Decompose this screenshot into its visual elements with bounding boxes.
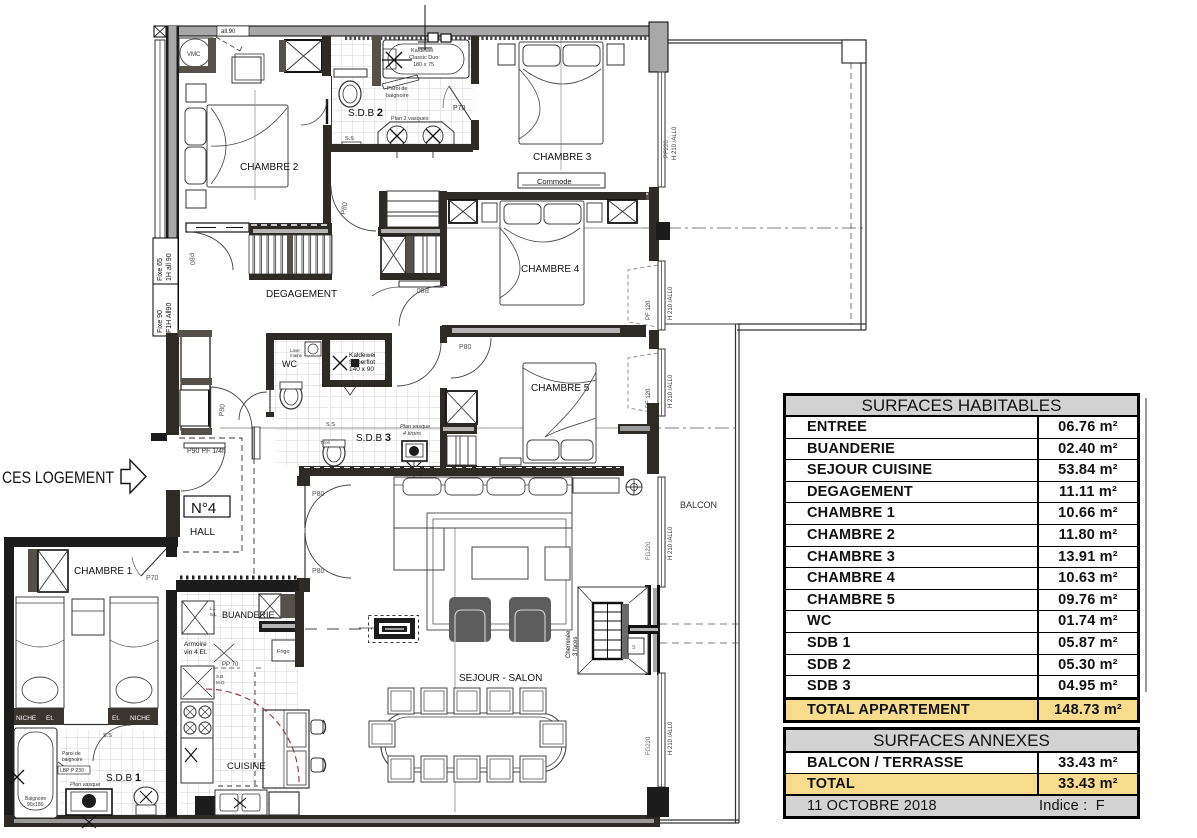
svg-text:Frigo: Frigo bbox=[277, 649, 290, 655]
svg-text:P80: P80 bbox=[459, 344, 472, 351]
svg-text:NICHE: NICHE bbox=[16, 715, 37, 722]
svg-text:H 210 /ALL0: H 210 /ALL0 bbox=[668, 526, 674, 560]
svg-text:4 tiroirs: 4 tiroirs bbox=[403, 431, 421, 437]
svg-text:CHAMBRE 4: CHAMBRE 4 bbox=[521, 264, 580, 275]
svg-text:PF220: PF220 bbox=[664, 140, 670, 158]
svg-text:S.S: S.S bbox=[326, 422, 335, 428]
svg-text:1H all 90: 1H all 90 bbox=[166, 253, 173, 281]
svg-text:M.O: M.O bbox=[216, 680, 225, 685]
svg-text:90x180: 90x180 bbox=[27, 802, 44, 808]
svg-text:S.D.B 1: S.D.B 1 bbox=[106, 772, 141, 784]
svg-text:S.S: S.S bbox=[345, 136, 354, 142]
svg-text:P80: P80 bbox=[219, 404, 227, 417]
svg-text:Cheminée: Cheminée bbox=[566, 630, 572, 658]
svg-text:140 x 90: 140 x 90 bbox=[349, 366, 374, 373]
svg-text:Classic Duo: Classic Duo bbox=[409, 55, 438, 61]
svg-text:WC: WC bbox=[282, 359, 297, 369]
svg-text:CHAMBRE 5: CHAMBRE 5 bbox=[531, 383, 590, 394]
svg-text:DEGAGEMENT: DEGAGEMENT bbox=[266, 289, 337, 300]
svg-text:Fixe 65: Fixe 65 bbox=[157, 258, 164, 281]
svg-text:vin 4 Et.: vin 4 Et. bbox=[184, 649, 208, 656]
svg-text:3 faces: 3 faces bbox=[573, 637, 579, 656]
svg-text:H 210 /ALL0: H 210 /ALL0 bbox=[668, 374, 674, 408]
svg-text:H 210 /ALL0: H 210 /ALL0 bbox=[668, 286, 674, 320]
svg-text:CHAMBRE 2: CHAMBRE 2 bbox=[240, 162, 299, 173]
svg-text:L.L: L.L bbox=[210, 606, 217, 611]
svg-text:N°4: N°4 bbox=[191, 500, 216, 517]
svg-text:Tiroir: Tiroir bbox=[320, 440, 331, 445]
svg-text:FG220: FG220 bbox=[646, 736, 652, 755]
svg-text:Plan vasque: Plan vasque bbox=[400, 424, 430, 430]
svg-text:Armoire: Armoire bbox=[184, 641, 207, 648]
svg-text:P90 PF 1/4h: P90 PF 1/4h bbox=[187, 448, 226, 455]
svg-text:CUISINE: CUISINE bbox=[227, 761, 266, 772]
svg-text:NICHE: NICHE bbox=[130, 715, 151, 722]
svg-text:Kaldewei: Kaldewei bbox=[411, 48, 433, 54]
svg-text:LBP P 230: LBP P 230 bbox=[60, 768, 84, 774]
svg-text:PF 120: PF 120 bbox=[646, 300, 652, 320]
svg-text:CHAMBRE 3: CHAMBRE 3 bbox=[533, 152, 592, 163]
svg-text:Plan 2 vasques: Plan 2 vasques bbox=[391, 116, 429, 122]
svg-text:H 210 /ALL0: H 210 /ALL0 bbox=[668, 721, 674, 755]
svg-text:Paroi de: Paroi de bbox=[387, 86, 408, 92]
svg-text:S.S: S.S bbox=[103, 733, 112, 739]
svg-text:mains: mains bbox=[290, 353, 303, 358]
svg-text:baignoire: baignoire bbox=[386, 93, 409, 99]
svg-text:P80: P80 bbox=[312, 568, 325, 575]
svg-text:S.L: S.L bbox=[210, 612, 217, 617]
svg-text:Et.: Et. bbox=[112, 715, 120, 722]
svg-text:CES LOGEMENT: CES LOGEMENT bbox=[2, 468, 114, 487]
svg-text:S.B: S.B bbox=[216, 674, 223, 679]
svg-text:BUANDERIE: BUANDERIE bbox=[222, 610, 275, 620]
svg-text:VMC: VMC bbox=[187, 52, 201, 58]
svg-text:F1H All90: F1H All90 bbox=[166, 303, 173, 333]
svg-text:SEJOUR - SALON: SEJOUR - SALON bbox=[459, 673, 542, 684]
svg-text:S.D.B 3: S.D.B 3 bbox=[356, 432, 391, 444]
svg-text:S.D.B 2: S.D.B 2 bbox=[348, 107, 383, 119]
svg-text:Et.: Et. bbox=[46, 715, 54, 722]
svg-text:P70: P70 bbox=[146, 575, 159, 582]
svg-text:P80: P80 bbox=[312, 491, 325, 498]
svg-text:HALL: HALL bbox=[190, 527, 215, 538]
svg-text:CHAMBRE 1: CHAMBRE 1 bbox=[74, 566, 133, 577]
svg-text:all.90: all.90 bbox=[221, 29, 236, 35]
svg-text:BALCON: BALCON bbox=[680, 500, 717, 510]
svg-text:PP 70: PP 70 bbox=[222, 662, 239, 668]
svg-text:H 210 /ALL0: H 210 /ALL0 bbox=[672, 126, 678, 160]
svg-text:P70: P70 bbox=[453, 105, 466, 112]
svg-text:Plan vasque: Plan vasque bbox=[70, 782, 100, 788]
svg-text:Fixe 90: Fixe 90 bbox=[157, 310, 164, 333]
svg-text:Kaldewei: Kaldewei bbox=[349, 352, 375, 359]
svg-text:baignoire: baignoire bbox=[62, 757, 83, 763]
svg-text:FG220: FG220 bbox=[646, 541, 652, 560]
svg-text:180 x 75: 180 x 75 bbox=[413, 62, 434, 68]
